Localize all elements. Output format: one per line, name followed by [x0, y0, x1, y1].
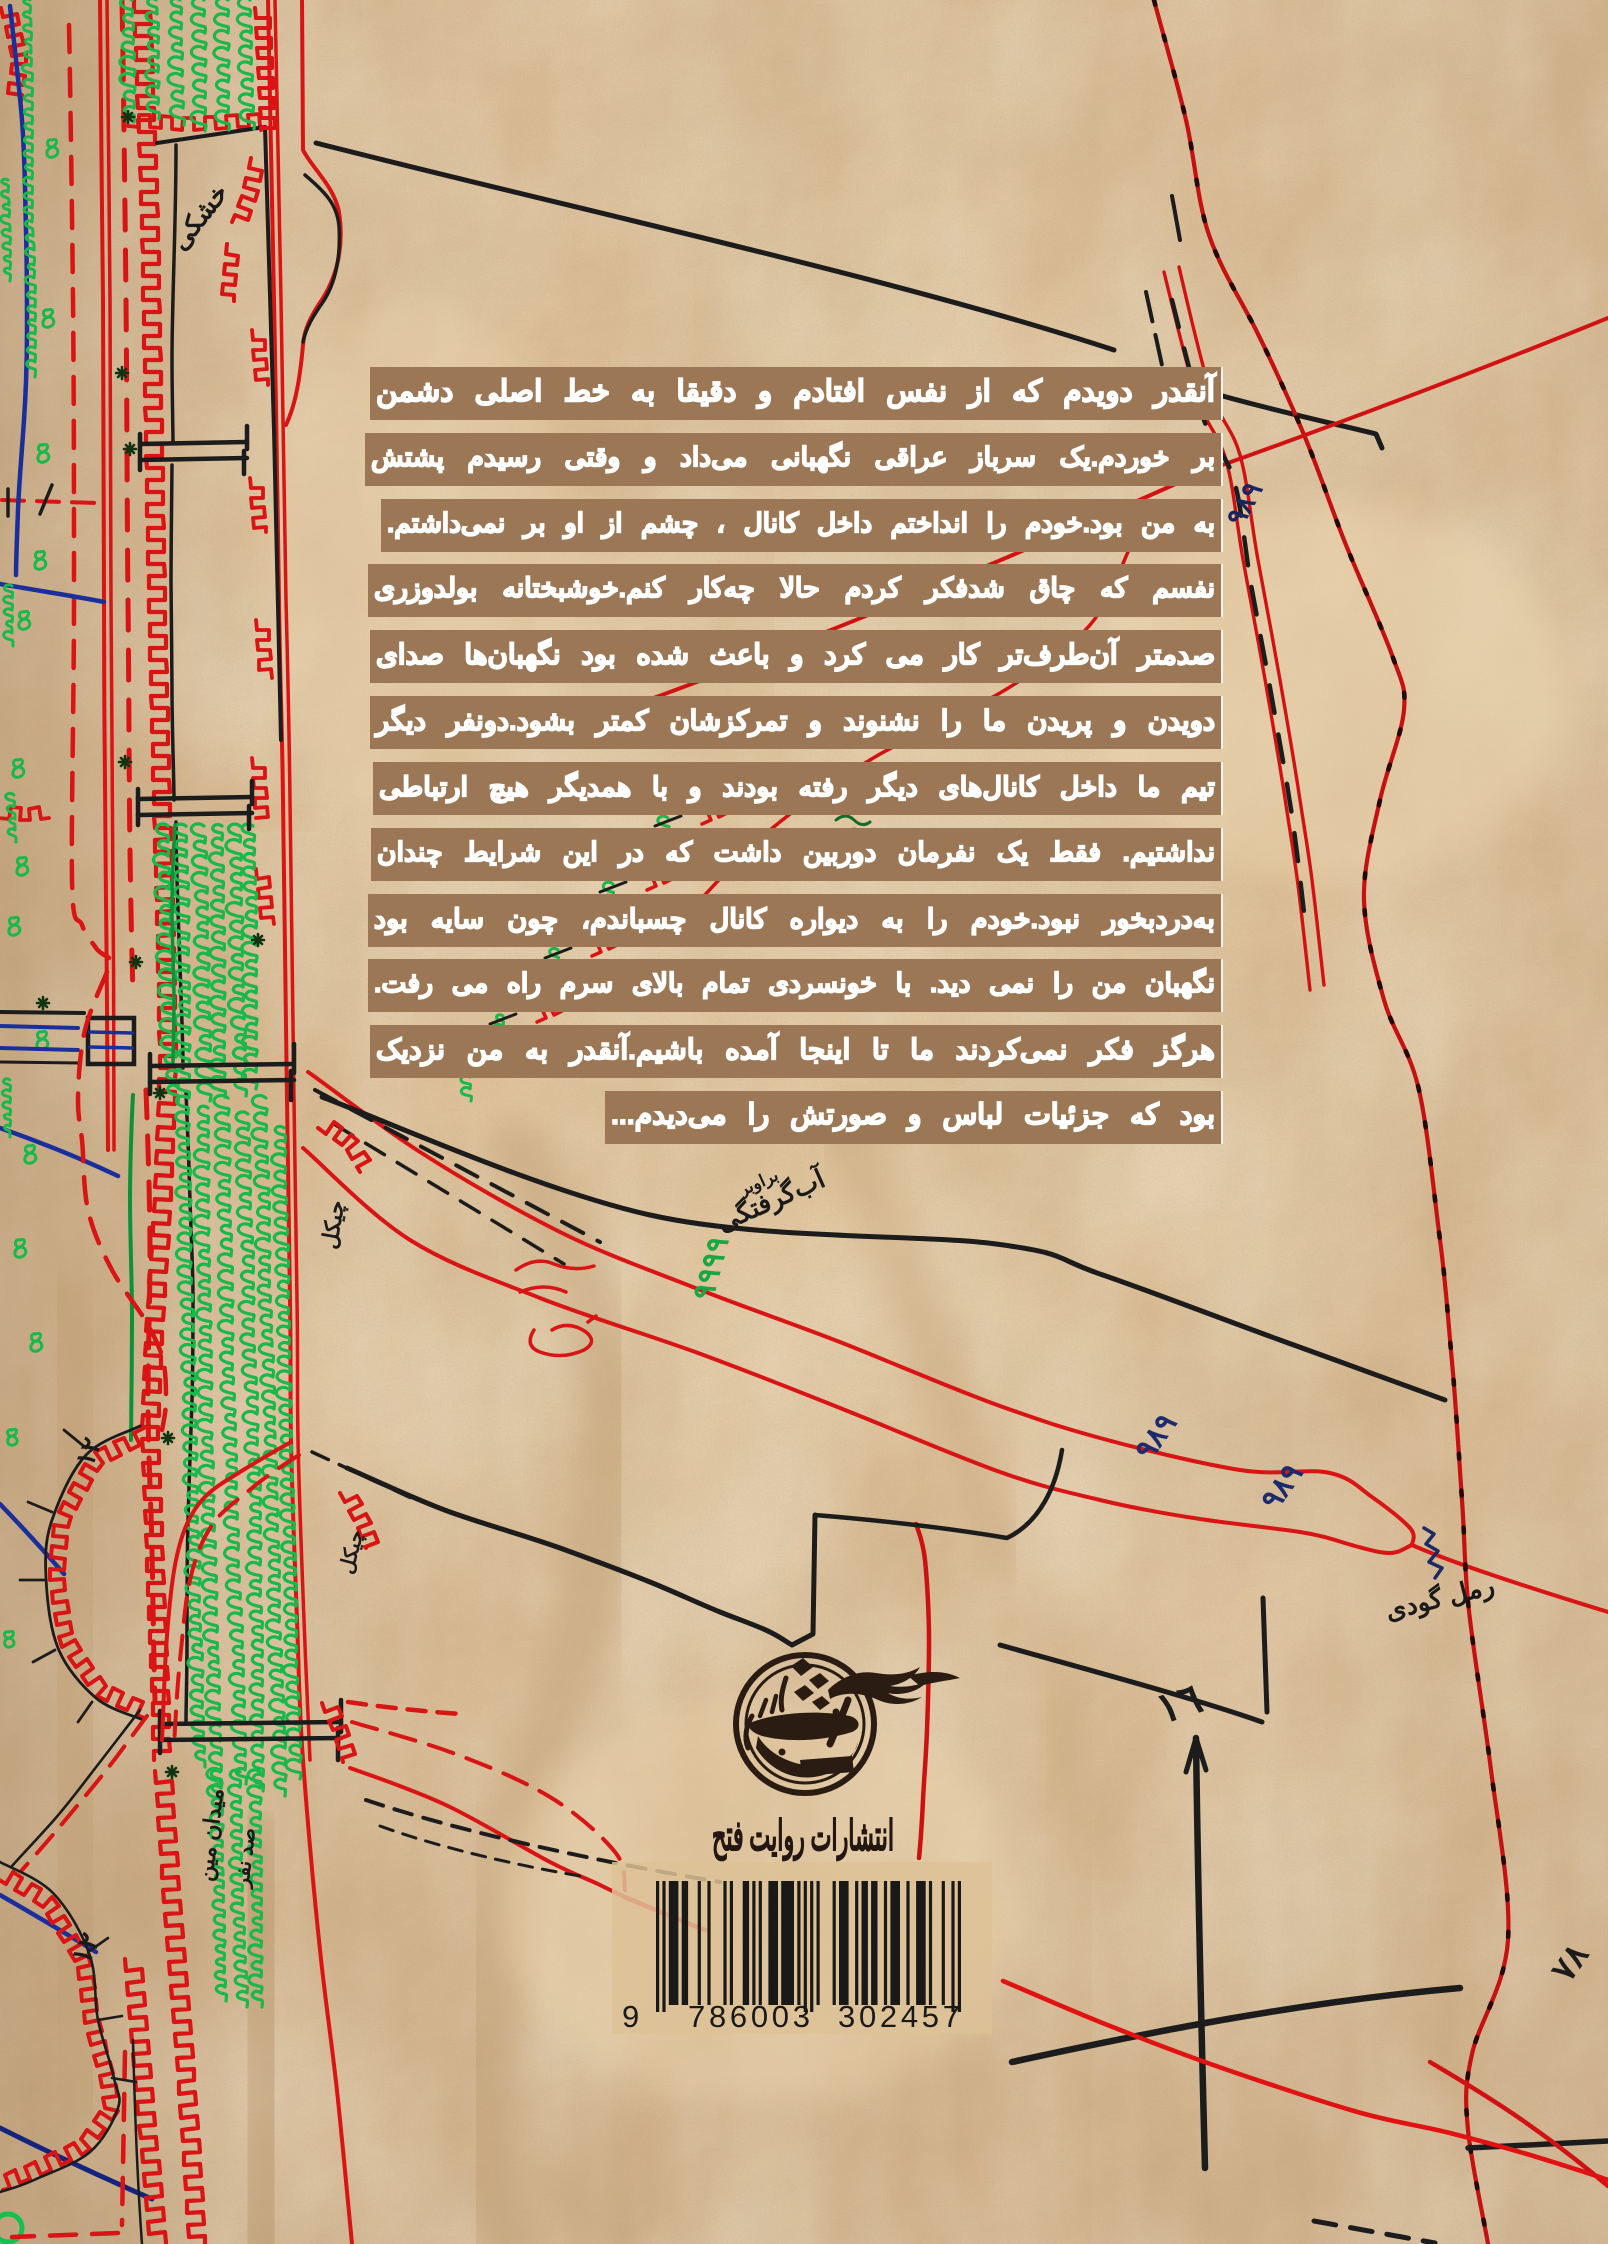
svg-text:9: 9 [622, 1999, 639, 2034]
svg-text:انتشارات روایت فتح: انتشارات روایت فتح [712, 1814, 894, 1861]
